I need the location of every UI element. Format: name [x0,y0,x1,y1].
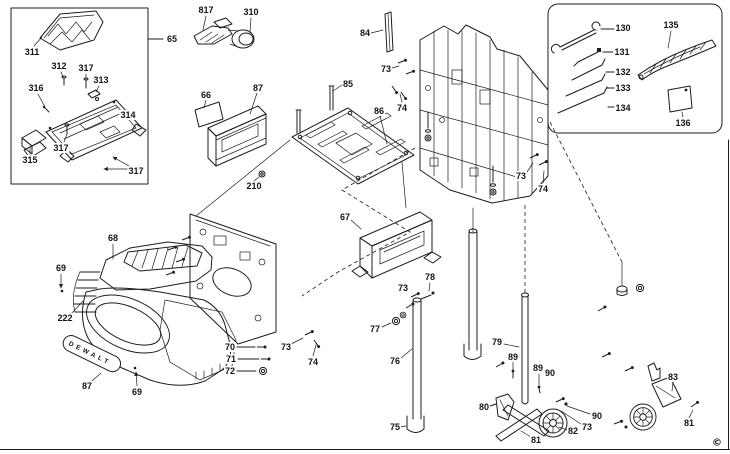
part-label-311: 311 [24,47,41,57]
labels-layer: 3113123173133163143173153176581731066872… [0,0,730,454]
part-label-89: 89 [532,363,544,373]
part-label-66: 66 [200,90,212,100]
part-label-85: 85 [342,79,354,89]
part-label-73: 73 [380,64,392,74]
part-label-68: 68 [107,233,119,243]
part-label-210: 210 [245,181,262,191]
part-label-69: 69 [131,387,143,397]
part-label-83: 83 [667,372,679,382]
part-label-74: 74 [307,357,319,367]
part-label-135: 135 [662,20,679,30]
part-label-73: 73 [515,171,527,181]
part-label-70: 70 [224,342,236,352]
part-label-81: 81 [530,435,542,445]
part-label-316: 316 [27,83,44,93]
part-label-78: 78 [424,272,436,282]
part-label-314: 314 [119,110,136,120]
part-label-132: 132 [614,67,631,77]
part-label-73: 73 [397,283,409,293]
part-label-79: 79 [491,337,503,347]
part-label-84: 84 [359,28,371,38]
part-label-317: 317 [52,143,69,153]
part-label-134: 134 [614,103,631,113]
part-label-73: 73 [581,422,593,432]
part-label-65: 65 [166,34,178,44]
part-label-87: 87 [252,83,264,93]
exploded-parts-diagram: DEWALT [0,0,730,454]
part-label-817: 817 [197,5,214,15]
part-label-82: 82 [567,426,579,436]
part-label-75: 75 [389,422,401,432]
part-label-74: 74 [537,184,549,194]
part-label-136: 136 [674,118,691,128]
part-label-76: 76 [389,356,401,366]
part-label-67: 67 [339,212,351,222]
part-label-315: 315 [21,155,38,165]
part-label-133: 133 [614,83,631,93]
part-label-90: 90 [544,368,556,378]
part-label-77: 77 [369,324,381,334]
part-label-313: 313 [92,75,109,85]
part-label-312: 312 [50,61,67,71]
part-label-81: 81 [683,418,695,428]
part-label-71: 71 [225,354,237,364]
part-label-222: 222 [56,313,73,323]
part-label-310: 310 [242,7,259,17]
part-label-74: 74 [396,103,408,113]
part-label-72: 72 [224,366,236,376]
copyright-symbol: © [712,438,722,449]
part-label-131: 131 [613,47,630,57]
part-label-130: 130 [614,23,631,33]
part-label-317: 317 [127,166,144,176]
part-label-73: 73 [280,342,292,352]
part-label-80: 80 [478,402,490,412]
part-label-89: 89 [507,352,519,362]
part-label-90: 90 [591,411,603,421]
part-label-86: 86 [373,106,385,116]
part-label-87: 87 [81,381,93,391]
part-label-317: 317 [77,63,94,73]
part-label-69: 69 [55,263,67,273]
